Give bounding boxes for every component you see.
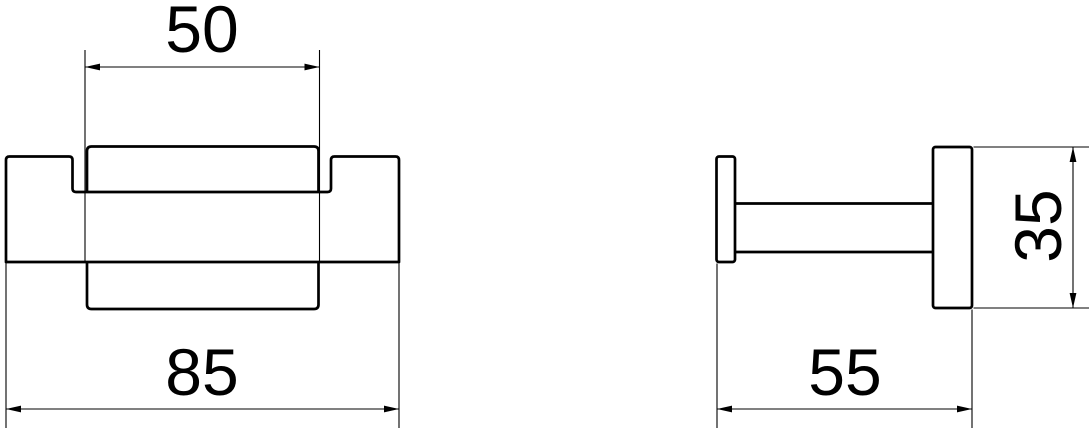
side-view-wallplate bbox=[933, 147, 972, 308]
dimension-label-width-85: 85 bbox=[165, 339, 238, 405]
arrowhead-left bbox=[85, 64, 100, 71]
dimension-label-depth-55: 55 bbox=[808, 339, 881, 405]
front-view-rail-outline bbox=[6, 157, 399, 263]
side-view-rail bbox=[717, 157, 736, 263]
front-view-wallplate-top bbox=[87, 147, 319, 193]
arrowhead-right bbox=[957, 406, 972, 413]
dimension-label-width-50: 50 bbox=[165, 0, 238, 62]
front-view-dimension-50 bbox=[85, 50, 320, 263]
technical-drawing-canvas: 50 85 55 35 bbox=[0, 0, 1091, 429]
arrowhead-left bbox=[717, 406, 732, 413]
arrowhead-right bbox=[305, 64, 320, 71]
hook-dimension-drawing bbox=[0, 0, 1091, 429]
front-view-wallplate-bottom bbox=[87, 262, 319, 309]
arrowhead-down bbox=[1070, 293, 1077, 308]
arrowhead-left bbox=[6, 406, 21, 413]
dimension-label-height-35: 35 bbox=[1005, 189, 1071, 262]
arrowhead-up bbox=[1070, 147, 1077, 162]
arrowhead-right bbox=[384, 406, 399, 413]
